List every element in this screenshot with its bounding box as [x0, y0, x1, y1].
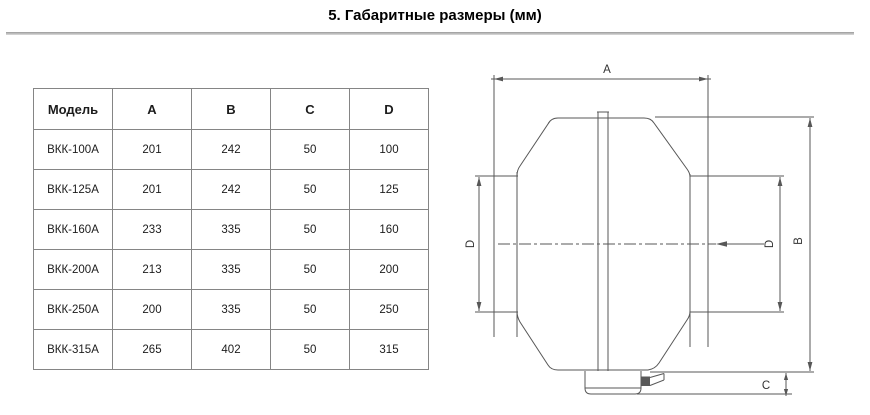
dimension-lines [477, 77, 813, 396]
cable-gland [641, 374, 664, 387]
clamp-band [597, 112, 609, 371]
extension-lines [475, 75, 814, 394]
dim-label-a: A [603, 64, 611, 76]
centerline-airflow-arrow [498, 241, 764, 246]
terminal-box [585, 371, 641, 394]
manual-page: 5. Габаритные размеры (мм) Модель A B C … [0, 0, 870, 415]
dim-label-d-left: D [465, 240, 477, 248]
dim-label-d-right: D [764, 240, 776, 248]
fan-dimension-drawing: A D D B C [0, 0, 870, 415]
dim-label-c: C [762, 380, 770, 392]
dim-label-b: B [793, 237, 805, 245]
